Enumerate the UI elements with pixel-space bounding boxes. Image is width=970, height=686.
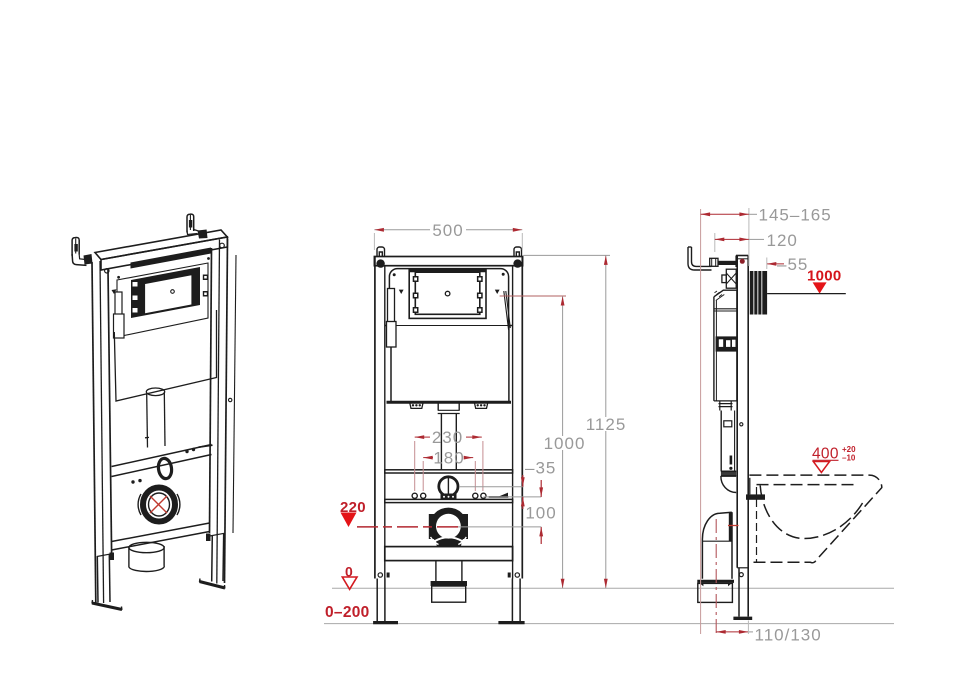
svg-text:–35: –35: [525, 459, 556, 478]
svg-text:110/130: 110/130: [755, 626, 822, 645]
svg-text:0–200: 0–200: [325, 604, 370, 621]
svg-text:1125: 1125: [586, 415, 627, 434]
svg-text:–10: –10: [842, 454, 856, 463]
svg-text:145–165: 145–165: [759, 206, 832, 225]
svg-text:120: 120: [767, 231, 798, 250]
svg-text:–55: –55: [777, 255, 808, 274]
svg-text:500: 500: [432, 221, 463, 240]
svg-text:180: 180: [433, 449, 464, 468]
svg-text:100: 100: [525, 504, 556, 523]
svg-text:1000: 1000: [544, 434, 586, 453]
svg-text:230: 230: [432, 428, 463, 447]
svg-text:1000: 1000: [807, 268, 842, 285]
